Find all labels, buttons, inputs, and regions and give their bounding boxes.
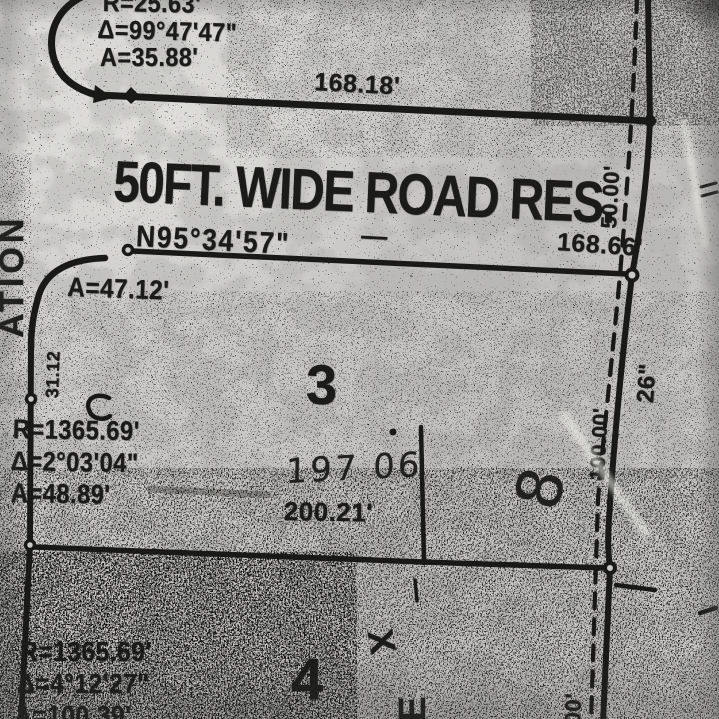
lot3-curve-radius: R=1365.69' xyxy=(12,414,140,447)
x-tick-mark xyxy=(415,580,417,601)
left-edge-word: ATION xyxy=(0,168,32,338)
right-width-note: 26" xyxy=(632,332,665,404)
node-right-mid xyxy=(627,270,638,281)
lot3-number: 3 xyxy=(306,352,338,417)
ink-dot xyxy=(390,429,397,436)
lot3-curve-arc: A=48.89' xyxy=(10,478,110,511)
top-frontage-dim: 168.18' xyxy=(313,68,400,101)
lot3-curve-delta: Δ=2°03'04" xyxy=(10,446,138,479)
bearing-distance-dim: 168.66' xyxy=(556,228,644,263)
lot3-frontage-dim: 200.21' xyxy=(283,496,373,529)
lot4-curve-radius: R=1365.69' xyxy=(20,636,152,668)
lot3-corner-arc-dim: A=47.12' xyxy=(67,272,170,307)
lot4-curve-delta: Δ=4°12'27" xyxy=(17,668,149,700)
lot3-side-dim: 31.12 xyxy=(42,323,66,399)
plat-photo: R=25.63' Δ=99°47'47" A=35.88' 168.18' 50… xyxy=(0,0,719,719)
bearing-separator: — xyxy=(360,220,388,252)
lot4-curve-arc: A=100.39' xyxy=(14,700,131,719)
node-bearing-start xyxy=(124,246,133,255)
top-curve-arc: A=35.88' xyxy=(100,42,198,73)
lot4-number: 4 xyxy=(291,646,324,713)
partial-depth-dim: 00' xyxy=(560,654,588,719)
road-width-dim: 50.00' xyxy=(596,128,627,229)
junction-blob xyxy=(644,115,656,127)
handwritten-e-mark: E xyxy=(392,696,435,719)
node-left-upper xyxy=(27,395,36,404)
handwritten-area-note: 197 06 xyxy=(285,445,422,492)
node-right-low xyxy=(605,563,615,573)
node-left-lower xyxy=(26,541,35,550)
